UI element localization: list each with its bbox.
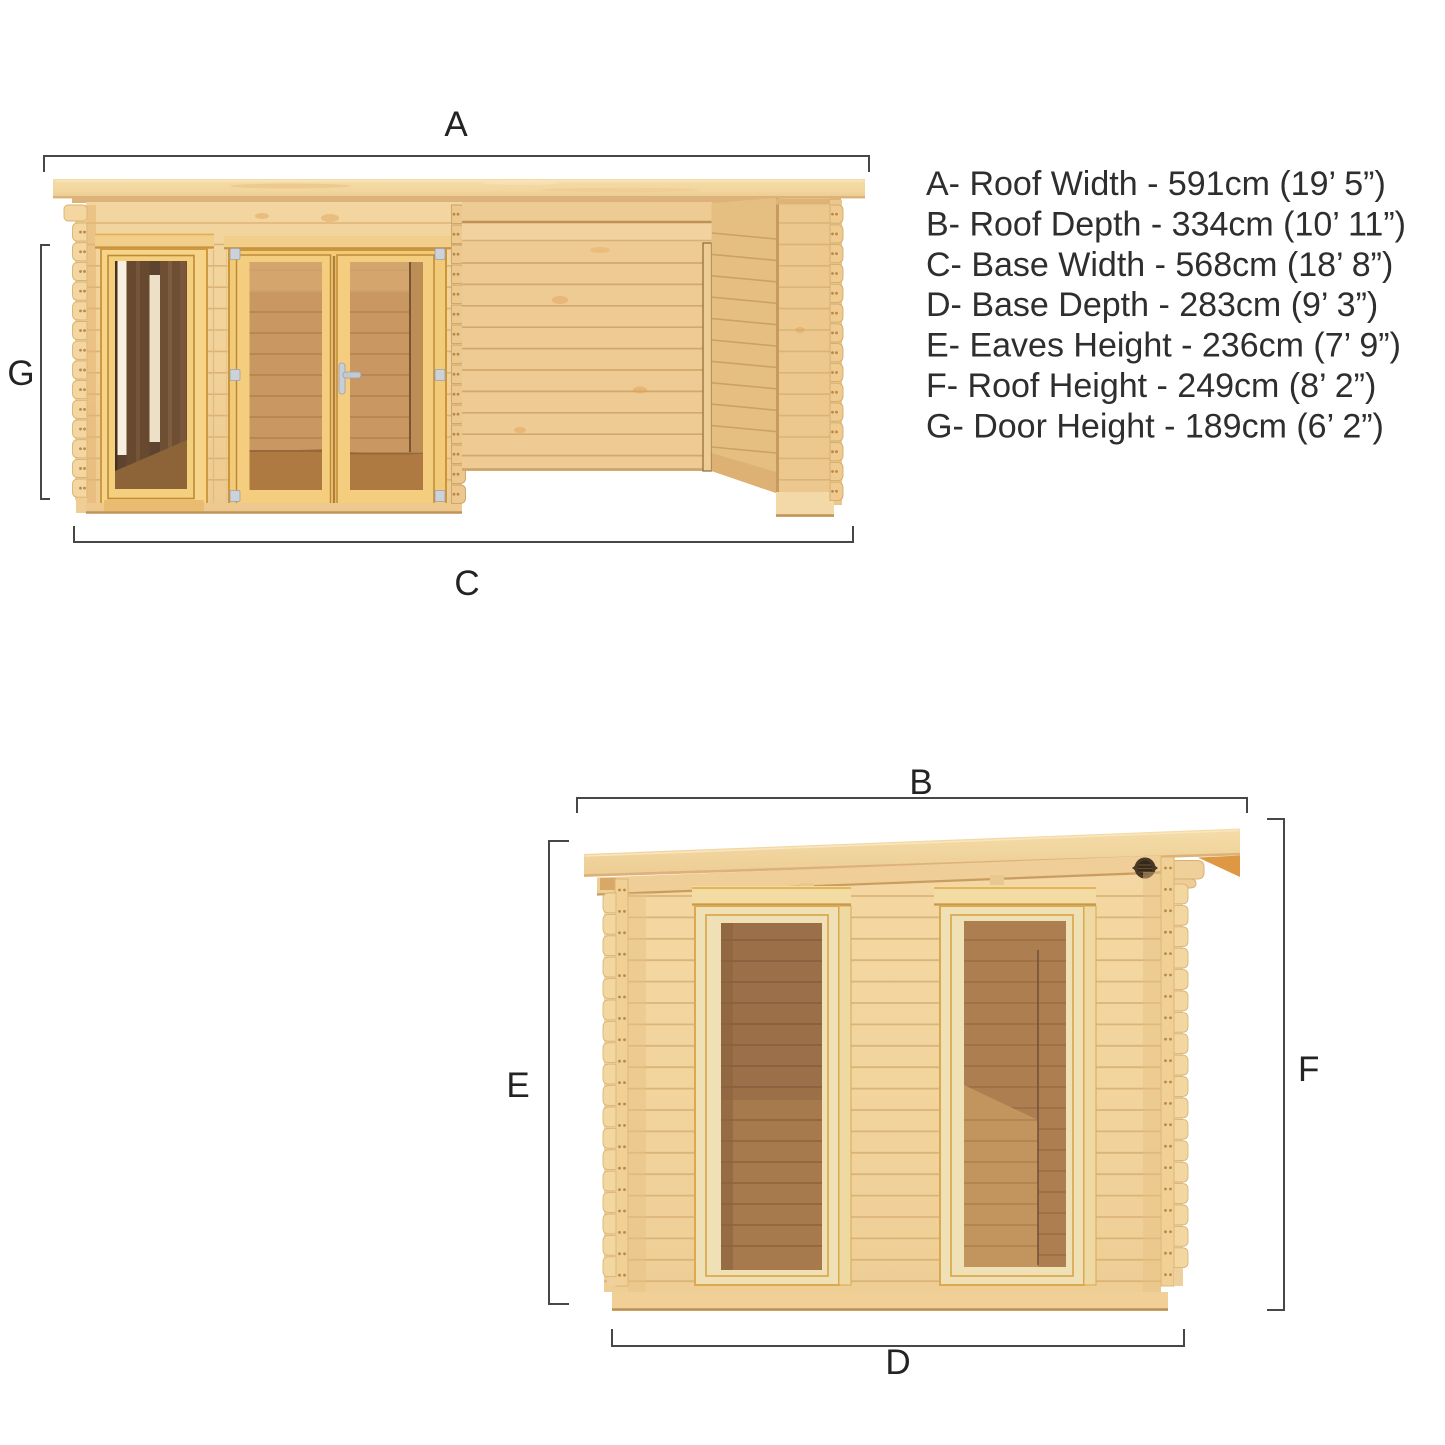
svg-text:B: B (909, 763, 932, 802)
svg-text:A: A (444, 105, 468, 144)
svg-text:E: E (506, 1066, 529, 1105)
svg-text:C: C (454, 564, 479, 603)
svg-text:C- Base Width - 568cm (18’ 8”): C- Base Width - 568cm (18’ 8”) (926, 246, 1393, 284)
svg-text:A- Roof Width - 591cm (19’ 5”): A- Roof Width - 591cm (19’ 5”) (926, 165, 1386, 203)
svg-text:F- Roof Height - 249cm (8’ 2”): F- Roof Height - 249cm (8’ 2”) (926, 367, 1376, 405)
svg-text:B- Roof Depth - 334cm (10’ 11”: B- Roof Depth - 334cm (10’ 11”) (926, 205, 1406, 243)
svg-text:F: F (1298, 1050, 1319, 1089)
svg-text:G- Door Height - 189cm (6’ 2”): G- Door Height - 189cm (6’ 2”) (926, 407, 1384, 445)
svg-text:E- Eaves Height - 236cm (7’ 9”: E- Eaves Height - 236cm (7’ 9”) (926, 327, 1401, 365)
svg-text:G: G (7, 354, 34, 393)
svg-text:D: D (885, 1343, 910, 1382)
svg-text:D- Base Depth - 283cm (9’ 3”): D- Base Depth - 283cm (9’ 3”) (926, 286, 1378, 324)
